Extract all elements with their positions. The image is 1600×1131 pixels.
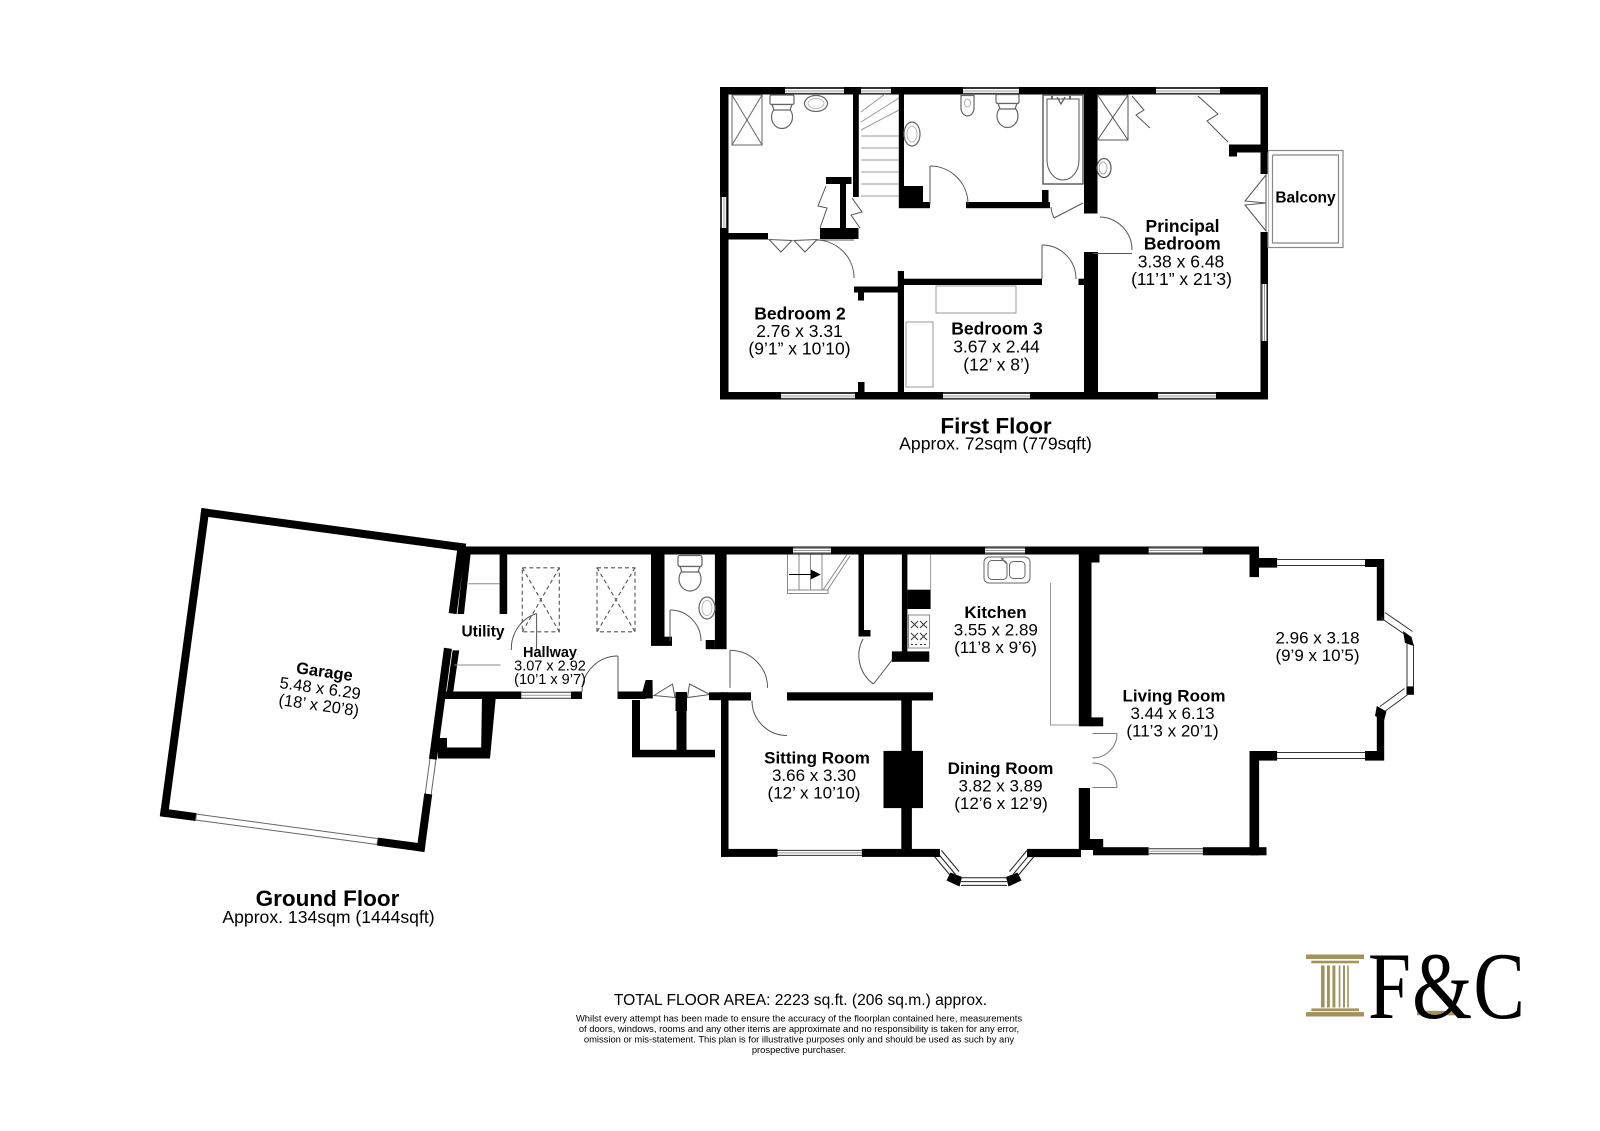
svg-text:(12’ x 10’10): (12’ x 10’10) <box>768 784 861 803</box>
svg-text:Utility: Utility <box>461 624 504 641</box>
svg-text:(9’1” x 10’10): (9’1” x 10’10) <box>748 339 850 359</box>
svg-text:Bedroom 3: Bedroom 3 <box>951 319 1043 339</box>
svg-text:omission or mis-statement. Thi: omission or mis-statement. This plan is … <box>584 1034 1015 1045</box>
svg-text:(11’8 x 9’6): (11’8 x 9’6) <box>954 638 1037 657</box>
svg-text:Sitting Room: Sitting Room <box>764 749 870 768</box>
svg-text:Kitchen: Kitchen <box>964 603 1026 622</box>
svg-text:3.44 x 6.13: 3.44 x 6.13 <box>1130 704 1214 723</box>
svg-text:3.55 x 2.89: 3.55 x 2.89 <box>954 621 1038 640</box>
svg-text:(11’3 x 20’1): (11’3 x 20’1) <box>1126 722 1218 741</box>
svg-text:Approx. 72sqm (779sqft): Approx. 72sqm (779sqft) <box>899 434 1092 454</box>
svg-text:(12’ x 8’): (12’ x 8’) <box>963 355 1029 375</box>
svg-text:prospective purchaser.: prospective purchaser. <box>752 1044 846 1055</box>
svg-text:F&C: F&C <box>1368 933 1526 1039</box>
svg-text:(9’9 x 10’5): (9’9 x 10’5) <box>1275 646 1359 665</box>
svg-text:(10’1 x 9’7): (10’1 x 9’7) <box>514 672 586 688</box>
svg-text:3.67 x 2.44: 3.67 x 2.44 <box>953 337 1040 357</box>
svg-text:(12’6 x 12’9): (12’6 x 12’9) <box>954 794 1048 813</box>
svg-text:Living Room: Living Room <box>1123 687 1226 706</box>
svg-text:TOTAL FLOOR AREA: 2223 sq.ft.: TOTAL FLOOR AREA: 2223 sq.ft. (206 sq.m.… <box>614 992 987 1009</box>
svg-text:(11’1” x 21’3): (11’1” x 21’3) <box>1131 269 1232 289</box>
svg-text:3.66 x 3.30: 3.66 x 3.30 <box>772 766 856 785</box>
svg-text:Whilst every attempt has been: Whilst every attempt has been made to en… <box>576 1013 1022 1024</box>
svg-text:2.96 x 3.18: 2.96 x 3.18 <box>1275 629 1359 648</box>
svg-text:of doors, windows, rooms and a: of doors, windows, rooms and any other i… <box>579 1023 1019 1034</box>
svg-text:Dining Room: Dining Room <box>948 759 1054 778</box>
svg-text:Balcony: Balcony <box>1275 190 1336 207</box>
svg-text:Approx. 134sqm (1444sqft): Approx. 134sqm (1444sqft) <box>222 907 434 927</box>
svg-text:3.82 x 3.89: 3.82 x 3.89 <box>958 777 1042 796</box>
